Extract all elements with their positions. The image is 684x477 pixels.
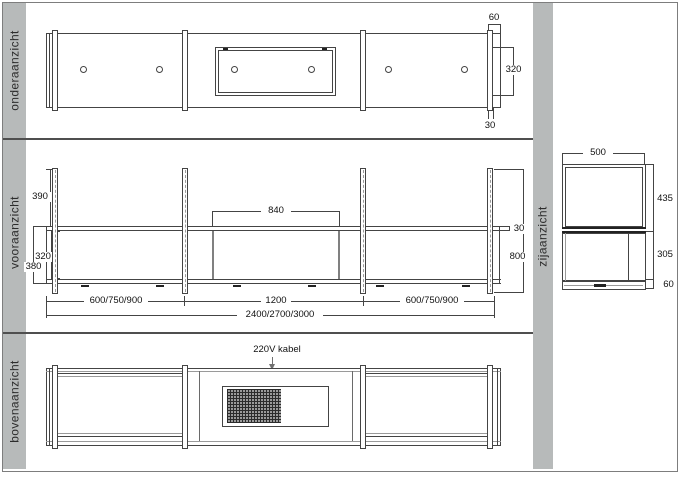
cleat-mark: [233, 285, 241, 287]
mount-hole: [308, 66, 315, 73]
bottom-view-post-2: [182, 30, 188, 111]
dim-leg: [494, 296, 495, 318]
dim-leg: [644, 153, 645, 164]
dim-leg: [509, 226, 510, 231]
bottom-view-left-inner-edge: [49, 33, 50, 108]
dim-depth: 320: [504, 65, 523, 75]
dim-post-width: 30: [481, 121, 499, 131]
top-view-post-3: [360, 365, 366, 449]
front-post-4: [487, 168, 493, 294]
cleat-mark: [156, 285, 164, 287]
front-post-1: [52, 168, 58, 294]
dim-ext: [493, 95, 514, 96]
top-view-back-inner-line: [46, 441, 501, 442]
dim-ext: [494, 292, 524, 293]
ventilation-grille: [227, 389, 281, 423]
compartment-inner-line: [57, 376, 183, 377]
side-view-lower-box: [562, 233, 646, 281]
side-view-upper-box-inner: [565, 167, 643, 227]
mount-hole: [80, 66, 87, 73]
top-view-mid-right-line: [352, 371, 353, 441]
dim-total-height: 800: [508, 252, 527, 262]
dim-box-width: 840: [261, 206, 291, 216]
dim-ext: [33, 283, 46, 284]
mount-hole: [156, 66, 163, 73]
dim-leg: [184, 296, 185, 306]
dim-left-section: 600/750/900: [84, 296, 148, 306]
dim-leg: [493, 107, 494, 119]
front-top-shelf-bottom: [46, 230, 501, 231]
cleat-mark: [81, 285, 89, 287]
mount-hole: [385, 66, 392, 73]
dim-base-height: 60: [661, 280, 676, 290]
front-right-edge: [499, 226, 500, 284]
box-corner-mark: [223, 48, 228, 50]
dim-leg: [500, 24, 501, 33]
dim-right-section: 600/750/900: [400, 296, 464, 306]
front-bottom-shelf-bottom: [46, 283, 501, 284]
front-media-box-right: [338, 231, 340, 279]
front-top-shelf-top: [46, 226, 501, 227]
bottom-view-post-1: [52, 30, 58, 111]
front-post-2: [182, 168, 188, 294]
side-view-base-mark: [594, 284, 606, 287]
compartment-inner-line: [57, 433, 183, 434]
cable-note: 220V kabel: [249, 345, 305, 355]
box-corner-mark: [322, 48, 327, 50]
side-view-lower-inner-left: [565, 233, 566, 281]
label-top-view: bovenaanzicht: [9, 337, 22, 467]
top-view-left-compartment: [57, 373, 183, 437]
mount-hole: [461, 66, 468, 73]
dim-upper-height: 435: [655, 194, 675, 204]
top-view-post-2: [182, 365, 188, 449]
dim-leg: [363, 296, 364, 306]
dim-leg: [46, 296, 47, 318]
top-view-post-1: [52, 365, 58, 449]
bottom-view-post-3: [360, 30, 366, 111]
cleat-mark: [462, 285, 470, 287]
dim-lower-height: 305: [655, 250, 675, 260]
label-side-view: zijaanzicht: [537, 172, 550, 302]
label-bottom-view: onderaanzicht: [9, 6, 22, 136]
front-bottom-shelf-top: [46, 279, 501, 280]
cleat-mark: [376, 285, 384, 287]
dim-leg: [212, 211, 213, 227]
dim-end-width: 60: [486, 13, 502, 23]
bottom-view-post-4: [487, 30, 493, 111]
section-divider-2: [3, 332, 533, 334]
top-view-left-inner-edge: [49, 368, 50, 446]
cleat-mark: [308, 285, 316, 287]
dim-ext: [33, 226, 46, 227]
label-front-view: vooraanzicht: [9, 168, 22, 298]
dim-shelf-thickness: 30: [512, 224, 526, 234]
dim-leg: [562, 153, 563, 164]
mount-hole: [231, 66, 238, 73]
side-view-flap-edge: [628, 233, 629, 281]
compartment-inner-line: [365, 376, 489, 377]
front-media-box-left: [212, 231, 214, 279]
dim-ext: [494, 169, 524, 170]
top-view-right-compartment: [365, 373, 489, 437]
front-post-3: [360, 168, 366, 294]
top-view-mid-left-line: [199, 371, 200, 441]
dim-outer-height: 380: [24, 262, 43, 272]
top-view-post-4: [487, 365, 493, 449]
top-view-right-inner-edge: [497, 368, 498, 446]
top-view-front-inner-line: [46, 371, 501, 372]
section-divider-1: [3, 138, 533, 140]
dim-ext: [493, 47, 514, 48]
dim-line: [653, 164, 654, 289]
dim-side-width: 500: [583, 148, 613, 158]
dim-leg: [339, 211, 340, 227]
compartment-inner-line: [365, 433, 489, 434]
dim-post-height: 390: [28, 192, 52, 202]
dim-mid-section: 1200: [261, 296, 291, 306]
technical-drawing-sheet: onderaanzicht vooraanzicht bovenaanzicht…: [0, 0, 684, 477]
dim-total-width: 2400/2700/3000: [237, 310, 323, 320]
